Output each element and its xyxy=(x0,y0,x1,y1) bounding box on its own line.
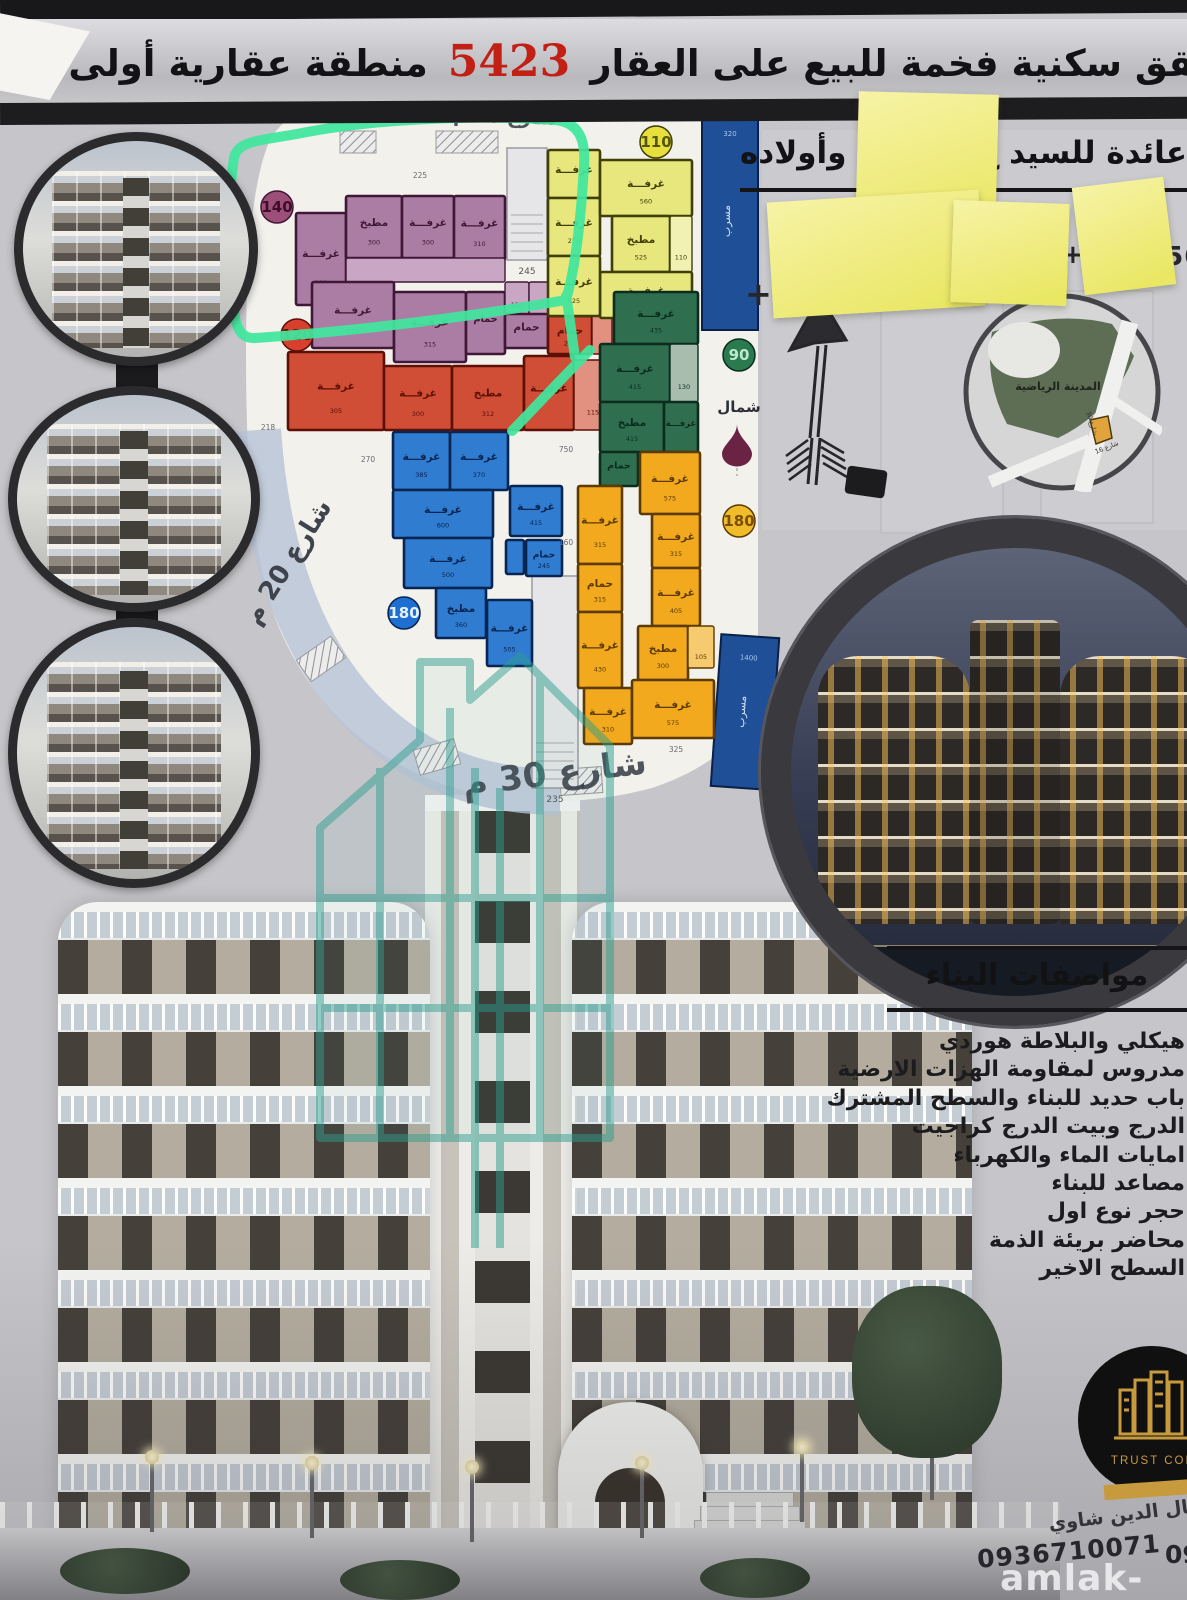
spec-item: مصاعد للبناء xyxy=(827,1170,1185,1198)
oval-building-core xyxy=(120,671,148,869)
real-estate-poster: 245235مسرب320مسرب1400غرفـــة160مطبخ300غر… xyxy=(0,0,1187,1600)
spec-item: مدروس لمقاومة الهزات الارضية xyxy=(827,1056,1185,1084)
spec-item: محاضر بريئة الذمة xyxy=(827,1227,1185,1255)
trust-logo-text: TRUST COM xyxy=(1111,1455,1187,1467)
sticky-note xyxy=(950,200,1069,306)
poster-title: شقق سكنية فخمة للبيع على العقار 5423 منط… xyxy=(0,36,1187,87)
highlight-stroke xyxy=(512,350,590,431)
map-stadium xyxy=(988,322,1060,378)
trust-company-logo: TRUST COM xyxy=(1076,1342,1187,1512)
spec-item: السطح الاخير xyxy=(827,1255,1185,1283)
property-number: 5423 xyxy=(448,36,570,87)
sticky-note xyxy=(1072,177,1176,295)
site-watermark: amlak-sy.com xyxy=(1000,1558,1187,1600)
highlight-tail xyxy=(566,296,575,357)
oval-building xyxy=(52,171,219,348)
frame-ornament xyxy=(844,465,888,498)
oval-building-core xyxy=(120,431,148,595)
specs-heading: مواصفات البناء xyxy=(887,958,1187,993)
north-arrow-icon xyxy=(768,288,888,498)
specs-rule-bottom xyxy=(887,1008,1187,1012)
oval-building xyxy=(47,424,220,595)
spec-item: امايات الماء والكهرباء xyxy=(827,1142,1185,1170)
night-building-right-wing xyxy=(1060,656,1187,925)
building-photo-oval-2 xyxy=(8,386,260,612)
title-band: شقق سكنية فخمة للبيع على العقار 5423 منط… xyxy=(0,19,1187,103)
night-building-core xyxy=(970,620,1060,925)
building-photo-oval-1 xyxy=(14,132,258,366)
building-photo-oval-3 xyxy=(8,618,260,888)
spec-item: الدرج وبيت الدرج كراجيت xyxy=(827,1113,1185,1141)
oval-building-core xyxy=(123,178,150,348)
ownership-suffix: وأولاده xyxy=(740,135,846,171)
night-building-left-wing xyxy=(818,656,970,925)
specs-rule-top xyxy=(887,946,1187,950)
spec-item: هيكلي والبلاطة هوردي xyxy=(827,1028,1185,1056)
map-park-label: المدينة الرياضية xyxy=(1015,380,1101,393)
spec-item: حجر نوع اول xyxy=(827,1198,1185,1226)
highlight-loop xyxy=(230,118,585,338)
location-map-inset: المدينة الرياضية شارع 30 شارع 16 xyxy=(962,292,1162,492)
oval-building xyxy=(47,662,220,869)
specs-list: هيكلي والبلاطة هورديمدروس لمقاومة الهزات… xyxy=(827,1028,1185,1284)
title-text: شقق سكنية فخمة للبيع على العقار xyxy=(590,42,1187,85)
spec-item: باب حديد للبناء والسطح المشترك xyxy=(827,1085,1185,1113)
ownership-prefix: عائدة للسيد ع xyxy=(977,135,1187,171)
